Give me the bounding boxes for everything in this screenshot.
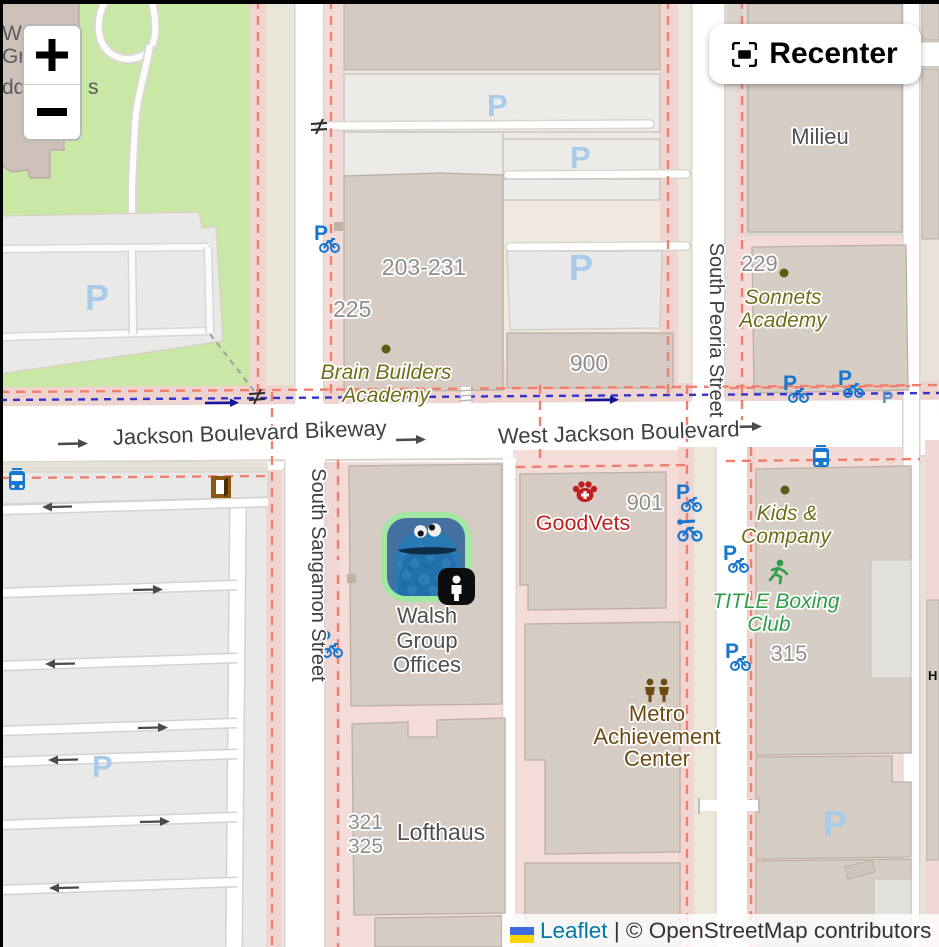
svg-text:P: P	[570, 140, 591, 175]
svg-text:South Sangamon Street: South Sangamon Street	[307, 468, 329, 682]
svg-text:South Peoria Street: South Peoria Street	[705, 243, 727, 418]
svg-text:Walsh: Walsh	[397, 603, 457, 628]
svg-text:229: 229	[741, 251, 778, 276]
svg-text:225: 225	[333, 296, 371, 322]
svg-text:TITLE Boxing: TITLE Boxing	[712, 590, 840, 613]
svg-text:Sonnets: Sonnets	[744, 286, 822, 309]
svg-text:P: P	[92, 749, 113, 784]
svg-text:Group: Group	[396, 628, 457, 653]
svg-text:Kids &: Kids &	[757, 502, 818, 525]
svg-text:P: P	[882, 388, 893, 407]
svg-text:H: H	[928, 668, 937, 683]
svg-text:P: P	[487, 88, 508, 123]
svg-text:P: P	[85, 277, 109, 318]
svg-text:325: 325	[348, 835, 383, 858]
svg-text:315: 315	[771, 641, 808, 666]
svg-text:Lofthaus: Lofthaus	[397, 819, 485, 845]
svg-text:s: s	[88, 76, 99, 99]
svg-text:GoodVets: GoodVets	[536, 511, 630, 535]
svg-text:Milieu: Milieu	[791, 124, 848, 149]
svg-text:Metro: Metro	[629, 701, 685, 726]
svg-text:Academy: Academy	[340, 384, 431, 407]
svg-text:P: P	[569, 247, 593, 288]
svg-text:Center: Center	[624, 746, 690, 771]
svg-text:901: 901	[627, 490, 664, 515]
svg-text:Brain Builders: Brain Builders	[321, 361, 452, 384]
svg-text:900: 900	[570, 350, 608, 376]
svg-text:Offices: Offices	[393, 652, 461, 677]
svg-text:Academy: Academy	[737, 309, 828, 332]
svg-text:203-231: 203-231	[382, 254, 466, 280]
svg-text:P: P	[823, 803, 847, 844]
svg-text:Company: Company	[741, 525, 832, 548]
svg-text:321: 321	[348, 811, 383, 834]
svg-text:Club: Club	[747, 613, 791, 636]
